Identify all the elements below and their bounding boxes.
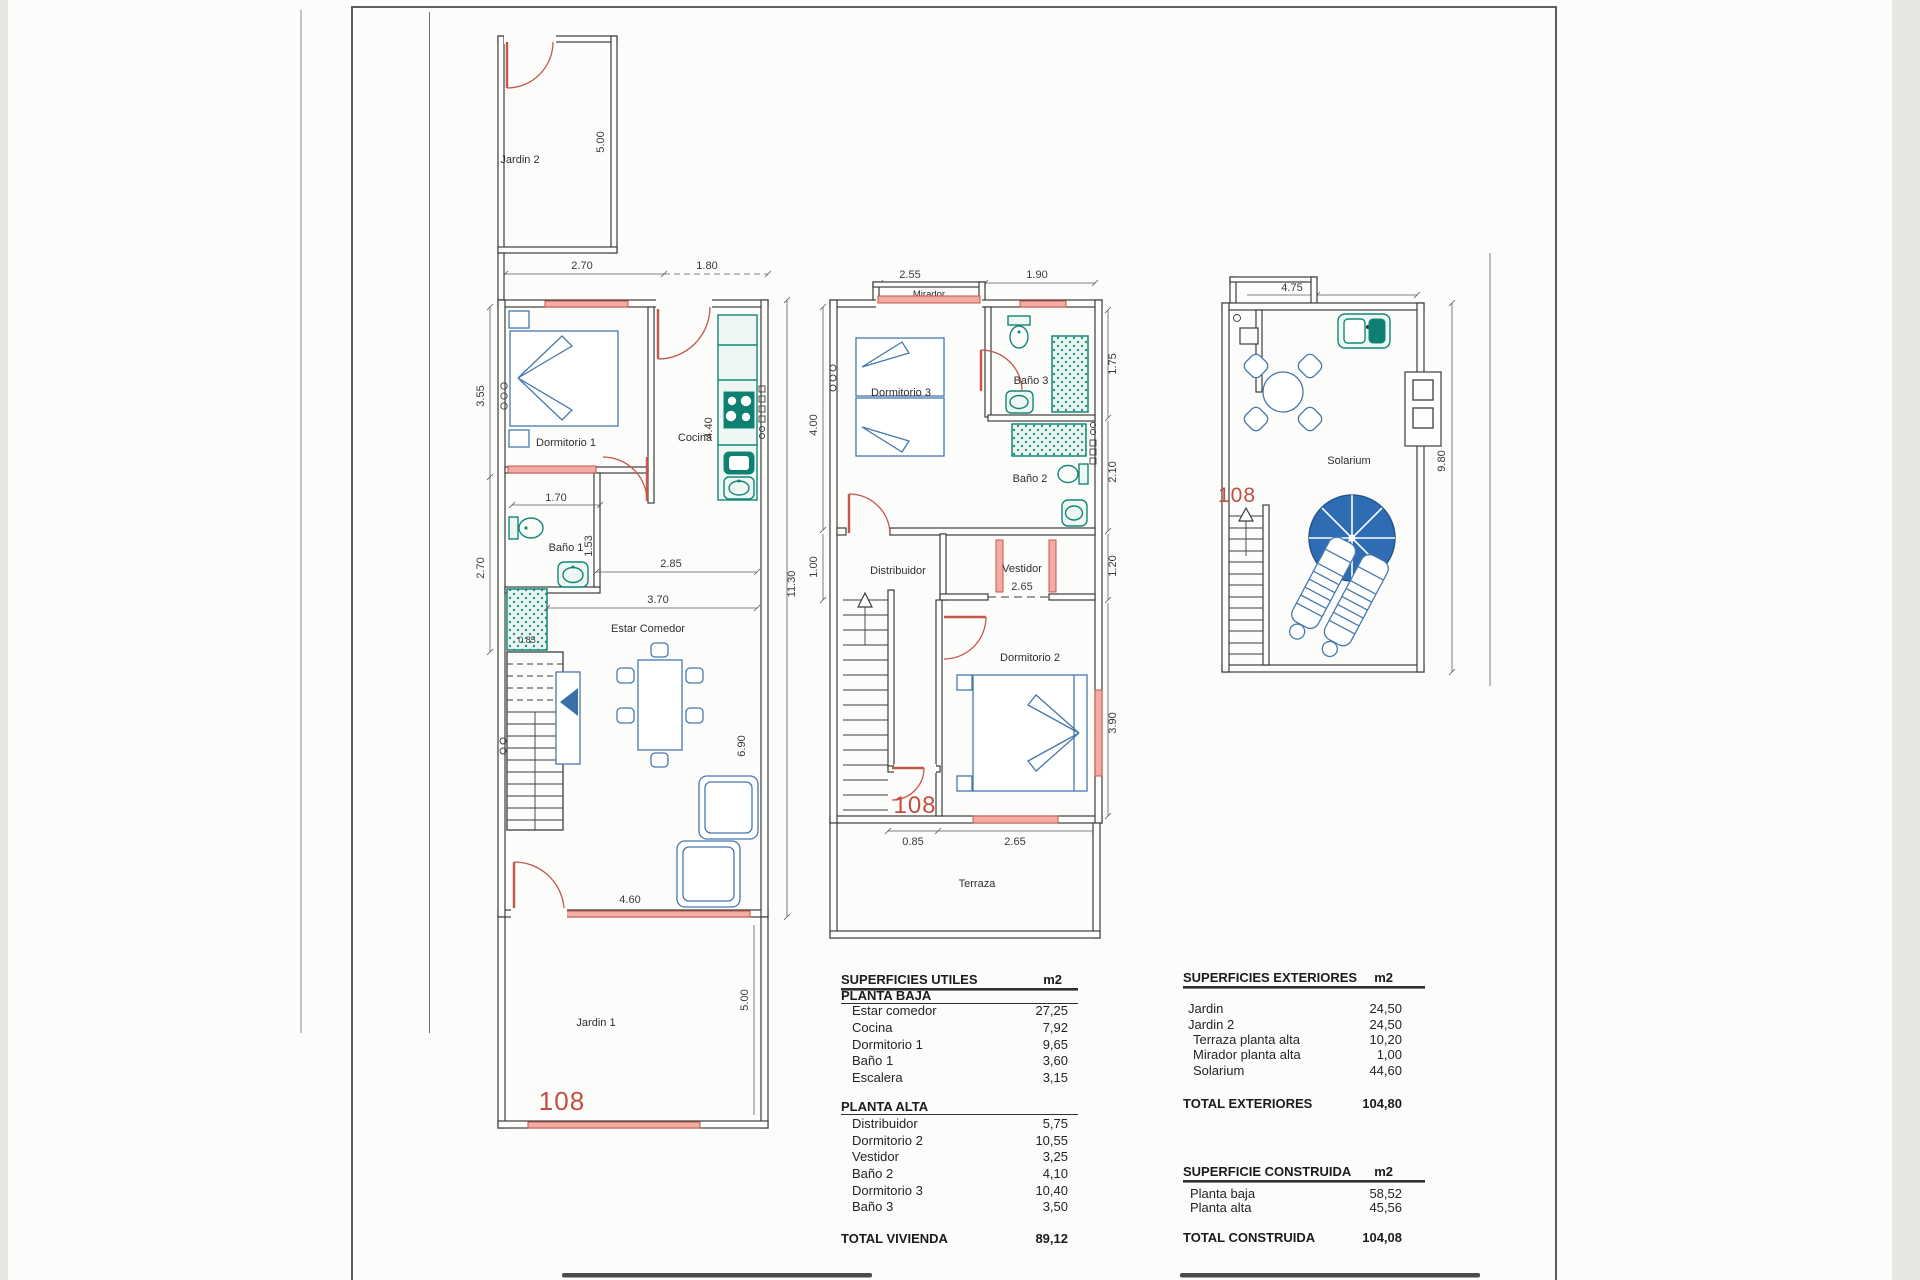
room-label-bano3: Baño 3	[1014, 375, 1049, 387]
row-label: Dormitorio 2	[852, 1133, 923, 1148]
dim-total-depth: 11.30	[786, 571, 798, 598]
dim-terraza-window: 2.65	[1004, 836, 1025, 848]
dim-bano2-depth: 2.10	[1107, 461, 1119, 482]
table-title: SUPERFICIES UTILES	[841, 972, 978, 987]
tv-unit	[556, 672, 580, 764]
nightstand	[509, 430, 529, 447]
room-label-dormitorio2: Dormitorio 2	[1000, 652, 1060, 664]
room-label-solarium: Solarium	[1327, 455, 1370, 467]
room-label-dormitorio1: Dormitorio 1	[536, 437, 596, 449]
dim-bano1-left: 2.70	[475, 557, 487, 578]
table-unit-header: m2	[1043, 972, 1062, 987]
section-header: PLANTA BAJA	[841, 988, 932, 1003]
total-label: TOTAL CONSTRUIDA	[1183, 1230, 1316, 1245]
dim-dorm2-depth: 3.90	[1107, 712, 1119, 733]
row-value: 10,40	[1035, 1183, 1068, 1198]
paper-page	[8, 0, 1892, 1280]
dim-top-left: 2.70	[571, 260, 592, 272]
row-label: Cocina	[852, 1020, 893, 1035]
dim-solarium-width: 4.75	[1281, 282, 1302, 294]
room-label-bano1: Baño 1	[549, 542, 584, 554]
row-value: 27,25	[1035, 1003, 1068, 1018]
dim-terraza-door: 0.85	[902, 836, 923, 848]
row-value: 3,25	[1043, 1149, 1068, 1164]
floorplan-sheet: Jardin 2 5.00 2.70 1.80	[0, 0, 1920, 1280]
nightstand	[957, 776, 972, 791]
dim-solarium-depth: 9.80	[1436, 450, 1448, 471]
window-rear	[565, 911, 750, 917]
nightstand	[957, 675, 972, 690]
row-value: 4,10	[1043, 1166, 1068, 1181]
dim-vestidor-depth: 1.20	[1107, 555, 1119, 576]
row-label: Solarium	[1193, 1063, 1244, 1078]
unit-number-solarium: 108	[1218, 484, 1256, 507]
row-label: Terraza planta alta	[1193, 1032, 1301, 1047]
total-value: 104,80	[1362, 1096, 1402, 1111]
total-value: 104,08	[1362, 1230, 1402, 1245]
shower-icon	[1052, 336, 1088, 412]
window-bano3	[1020, 301, 1066, 307]
row-value: 10,55	[1035, 1133, 1068, 1148]
dim-shower-width: 0.85	[518, 635, 536, 645]
bed-single	[856, 398, 944, 456]
dim-estar-b: 3.70	[647, 594, 668, 606]
row-value: 3,60	[1043, 1053, 1068, 1068]
row-value: 1,00	[1377, 1047, 1402, 1062]
row-label: Estar comedor	[852, 1003, 937, 1018]
shower-icon	[1012, 424, 1086, 456]
room-label-bano2: Baño 2	[1013, 473, 1048, 485]
room-label-distribuidor: Distribuidor	[870, 565, 926, 577]
sink-icon	[1062, 500, 1087, 526]
row-value: 58,52	[1369, 1186, 1402, 1201]
room-label-estar: Estar Comedor	[611, 623, 685, 635]
total-label: TOTAL VIVIENDA	[841, 1231, 949, 1246]
dim-estar-depth: 6.90	[736, 735, 748, 756]
row-value: 9,65	[1043, 1037, 1068, 1052]
cutoff-artifact	[1180, 1273, 1480, 1278]
row-label: Vestidor	[852, 1149, 900, 1164]
dim-dorm1-height: 3.55	[475, 385, 487, 406]
row-label: Planta alta	[1190, 1200, 1252, 1215]
total-label: TOTAL EXTERIORES	[1183, 1096, 1313, 1111]
window-mirador	[878, 296, 980, 303]
sink-icon	[1006, 391, 1033, 413]
table-unit-header: m2	[1374, 1164, 1393, 1179]
row-label: Baño 1	[852, 1053, 893, 1068]
dim-mirador-width: 2.55	[899, 269, 920, 281]
row-value: 24,50	[1369, 1017, 1402, 1032]
row-label: Escalera	[852, 1070, 903, 1085]
row-label: Mirador planta alta	[1193, 1047, 1301, 1062]
row-label: Dormitorio 3	[852, 1183, 923, 1198]
dim-vestidor-width: 2.65	[1011, 581, 1032, 593]
dim-jardin1-depth: 5.00	[739, 989, 751, 1010]
outdoor-sink-icon	[1338, 314, 1390, 348]
row-label: Jardin	[1188, 1001, 1223, 1016]
wardrobe-strip	[1049, 540, 1056, 592]
row-value: 3,50	[1043, 1199, 1068, 1214]
dim-cocina-depth: 4.40	[703, 417, 715, 438]
door-opening	[504, 34, 556, 44]
table-title: SUPERFICIE CONSTRUIDA	[1183, 1164, 1352, 1179]
table-title: SUPERFICIES EXTERIORES	[1183, 970, 1357, 985]
wardrobe-strip	[508, 466, 596, 473]
kitchen-counter	[718, 315, 757, 500]
window-dorm2	[1095, 690, 1102, 776]
room-label-vestidor: Vestidor	[1002, 563, 1042, 575]
row-value: 3,15	[1043, 1070, 1068, 1085]
row-label: Baño 3	[852, 1199, 893, 1214]
total-value: 89,12	[1035, 1231, 1068, 1246]
dim-estar-a: 2.85	[660, 558, 681, 570]
dim-bano3-depth: 1.75	[1107, 353, 1119, 374]
room-label-jardin2: Jardin 2	[500, 154, 539, 166]
dim-top-right: 1.80	[696, 260, 717, 272]
row-value: 10,20	[1369, 1032, 1402, 1047]
row-label: Baño 2	[852, 1166, 893, 1181]
dim-dorm3-depth: 4.00	[808, 414, 820, 435]
dim-bano1-height: 1.53	[583, 535, 595, 556]
row-label: Distribuidor	[852, 1116, 918, 1131]
row-label: Planta baja	[1190, 1186, 1256, 1201]
dim-bano1-width: 1.70	[545, 492, 566, 504]
row-value: 45,56	[1369, 1200, 1402, 1215]
unit-entry: 108	[892, 764, 937, 819]
row-value: 24,50	[1369, 1001, 1402, 1016]
cutoff-artifact	[562, 1273, 872, 1278]
row-value: 7,92	[1043, 1020, 1068, 1035]
table-unit-header: m2	[1374, 970, 1393, 985]
row-label: Dormitorio 1	[852, 1037, 923, 1052]
dim-landing-depth: 1.00	[808, 556, 820, 577]
unit-number-alta: 108	[893, 792, 936, 819]
wall-unit	[1405, 372, 1441, 446]
room-label-terraza: Terraza	[959, 878, 997, 890]
dim-rear-exit: 4.60	[619, 894, 640, 906]
stove-icon	[724, 392, 754, 428]
window-dorm1	[545, 301, 628, 307]
sink-icon	[558, 562, 588, 587]
room-label-dormitorio3: Dormitorio 3	[871, 387, 931, 399]
dim-jardin2-depth: 5.00	[595, 131, 607, 152]
bed-double	[973, 675, 1087, 791]
window-front	[528, 1122, 700, 1128]
window-terraza	[973, 816, 1058, 823]
dim-front-width: 1.90	[1026, 269, 1047, 281]
row-label: Jardin 2	[1188, 1017, 1234, 1032]
bed-dormitorio1	[509, 311, 618, 447]
section-header: PLANTA ALTA	[841, 1099, 929, 1114]
row-value: 44,60	[1369, 1063, 1402, 1078]
row-value: 5,75	[1043, 1116, 1068, 1131]
nightstand	[509, 311, 529, 328]
unit-number-baja: 108	[539, 1086, 585, 1116]
room-label-jardin1: Jardin 1	[576, 1017, 615, 1029]
